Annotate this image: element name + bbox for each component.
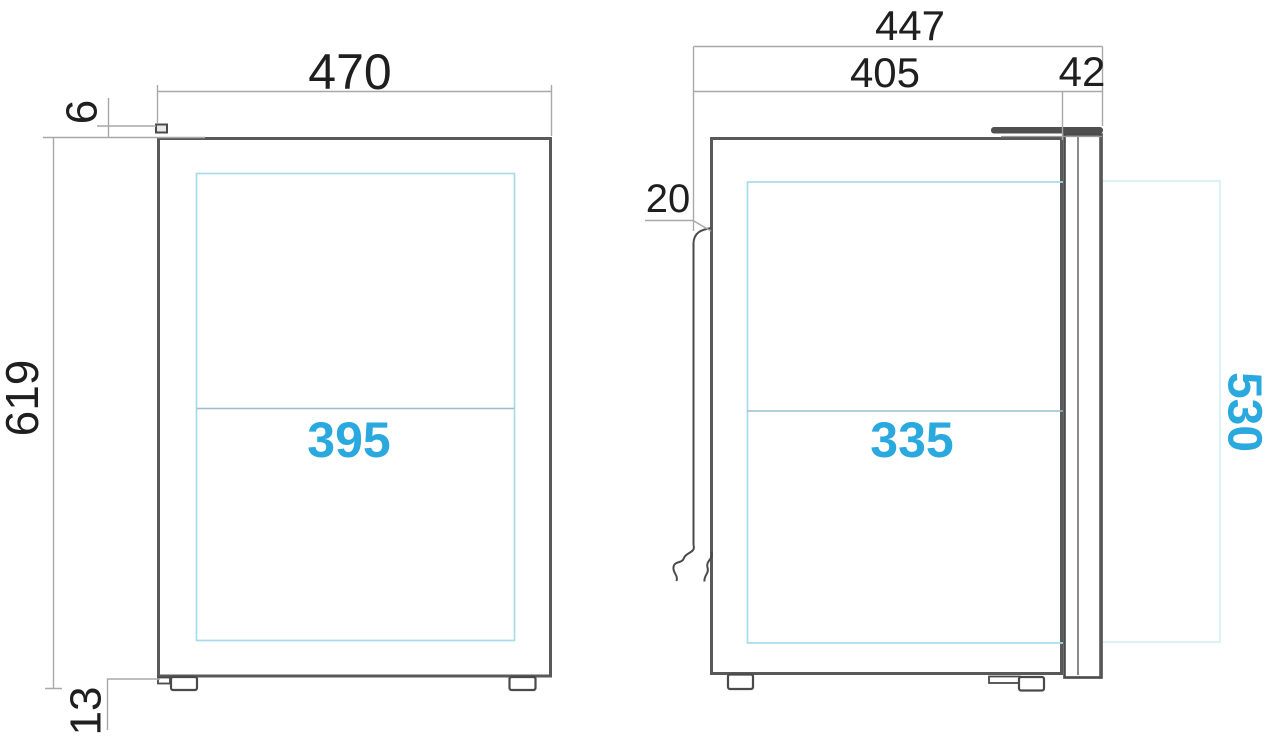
tube-break-squiggle-left [673,545,694,581]
side-door-slab [1065,135,1102,678]
front-view: 470 6 619 13 395 [0,44,552,735]
front-hinge-pin [156,125,167,133]
drawing-canvas: 470 6 619 13 395 [0,0,1280,738]
side-foot-bracket [989,677,1020,684]
front-width-dimension: 470 [158,44,552,136]
side-glass-depth-label: 335 [870,412,953,468]
front-pin-dimension: 6 [43,98,205,138]
side-cabinet-outline [712,139,1062,674]
side-right-foot [1019,677,1044,691]
front-width-label: 470 [308,44,391,100]
front-foot-dimension: 13 [62,679,161,736]
front-right-foot [510,677,536,690]
dimension-drawing: 470 6 619 13 395 [0,0,1280,738]
front-height-label: 619 [0,360,48,437]
side-back-clearance-label: 20 [646,177,691,221]
side-condenser-tube [673,228,712,582]
side-body-depth-label: 405 [850,49,920,96]
side-glass-height-label: 530 [1218,372,1271,452]
front-pin-height-label: 6 [58,100,107,124]
front-glass-width-label: 395 [307,412,390,468]
side-total-depth-label: 447 [875,2,945,49]
front-foot-height-label: 13 [62,687,111,736]
front-height-dimension: 619 [0,138,62,689]
side-door-handle [991,127,1103,134]
side-view: 447 405 42 20 335 530 [645,2,1271,691]
side-door-thickness-label: 42 [1059,48,1106,95]
front-cabinet-outline [159,139,551,677]
side-left-foot [728,675,753,690]
front-left-foot [171,677,197,690]
side-back-clearance-dimension: 20 [645,177,711,231]
side-body-depth-dimension: 405 42 [694,48,1106,140]
